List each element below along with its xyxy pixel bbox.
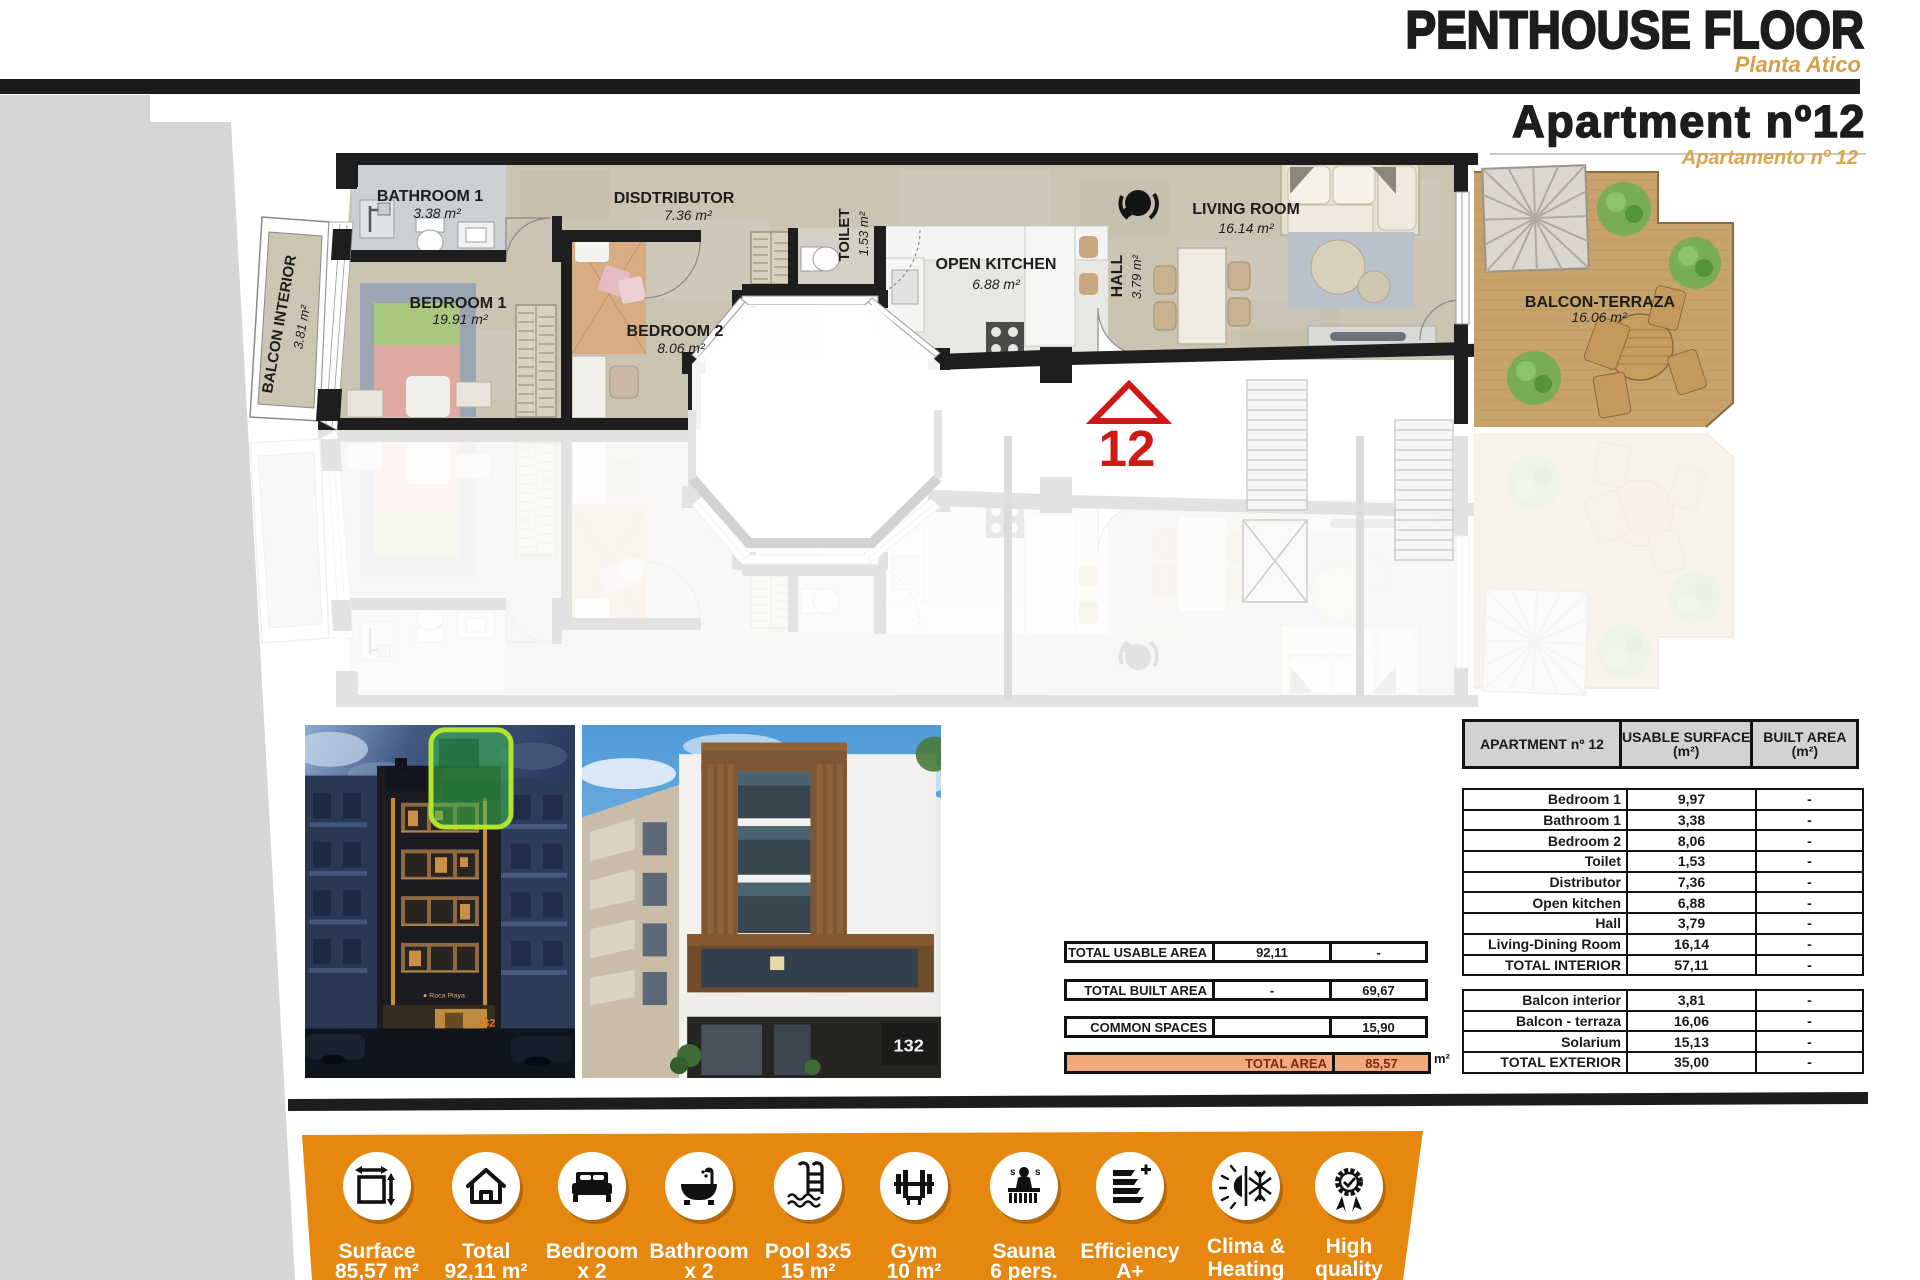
svg-text:A+: A+: [1116, 1260, 1143, 1280]
svg-text:10 m²: 10 m²: [887, 1260, 942, 1280]
svg-text:x 2: x 2: [577, 1260, 606, 1280]
svg-text:85,57 m²: 85,57 m²: [335, 1260, 419, 1280]
svg-text:92,11 m²: 92,11 m²: [445, 1260, 528, 1280]
svg-text:Clima &: Clima &: [1207, 1235, 1285, 1258]
svg-text:Heating: Heating: [1207, 1258, 1284, 1280]
svg-text:6 pers.: 6 pers.: [990, 1260, 1058, 1280]
svg-text:quality: quality: [1315, 1258, 1383, 1280]
svg-text:High: High: [1326, 1235, 1373, 1258]
svg-text:s: s: [1035, 1167, 1041, 1178]
svg-text:s: s: [1010, 1167, 1016, 1178]
svg-text:x 2: x 2: [684, 1260, 713, 1280]
svg-text:15 m²: 15 m²: [781, 1260, 836, 1280]
